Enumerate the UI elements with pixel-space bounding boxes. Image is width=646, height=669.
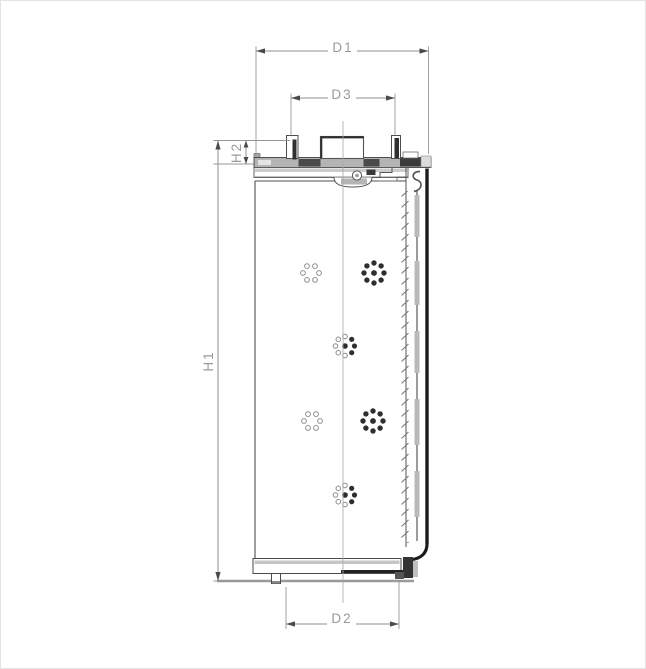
perforation-cluster-mixed (333, 334, 357, 358)
arrowhead-bottom (244, 157, 249, 164)
perforation-cluster-dark (361, 260, 386, 285)
cap-plate-segment (299, 159, 321, 167)
arrowhead-right (390, 621, 399, 626)
dim-label-d1: D1 (332, 40, 353, 55)
cap-plate-segment (400, 158, 422, 167)
arrowhead-left (286, 621, 295, 626)
dimension-h2: H2 (214, 141, 255, 165)
arrowhead-left (291, 95, 300, 100)
dim-label-d2: D2 (331, 611, 352, 626)
lug-center (321, 137, 364, 159)
perforation-cluster-dark (360, 408, 385, 433)
bottom-right-pad (395, 572, 404, 579)
dimension-h1: H1 (201, 141, 290, 582)
outer-shell (400, 168, 429, 560)
cap-lower-plate-stripe (255, 169, 407, 173)
arrowhead-right (420, 48, 429, 53)
filter-element-section-drawing: D1 D3 H1 H2 D2 (1, 1, 646, 669)
cap-plate-slot (258, 160, 271, 165)
perforation-cluster-mixed (333, 483, 357, 507)
body-outline (255, 181, 406, 559)
dim-label-d3: D3 (331, 87, 352, 102)
shell-bottom-curve (412, 544, 427, 560)
perforation-cluster-light (301, 264, 322, 283)
lug-right-rib (395, 138, 400, 158)
arrowhead-top (244, 141, 249, 148)
filter-media-seam (402, 191, 410, 543)
bottom-right-foot (403, 557, 413, 578)
arrowhead-top (215, 141, 220, 150)
lug-left-rib (293, 140, 297, 160)
bottom-cap-stripe (255, 561, 400, 565)
arrowhead-left (256, 48, 265, 53)
cap-right-step (421, 156, 431, 167)
arrowhead-bottom (215, 572, 220, 581)
dim-label-h2: H2 (229, 142, 244, 163)
technical-drawing-canvas: D1 D3 H1 H2 D2 (0, 0, 646, 669)
valve-top (403, 152, 418, 158)
bottom-end-cap (217, 557, 418, 584)
bypass-valve-spring (413, 172, 421, 192)
dimension-d2: D2 (286, 581, 399, 629)
bottom-right-foot-step (413, 561, 418, 577)
perforation-clusters (301, 260, 387, 507)
filter-element-body (217, 136, 431, 584)
mounting-lugs (287, 136, 401, 160)
cap-plate-segment (364, 159, 380, 167)
top-end-cap (254, 136, 431, 188)
arrowhead-right (386, 95, 395, 100)
dim-label-h1: H1 (201, 350, 216, 371)
perforation-cluster-light (302, 412, 323, 431)
